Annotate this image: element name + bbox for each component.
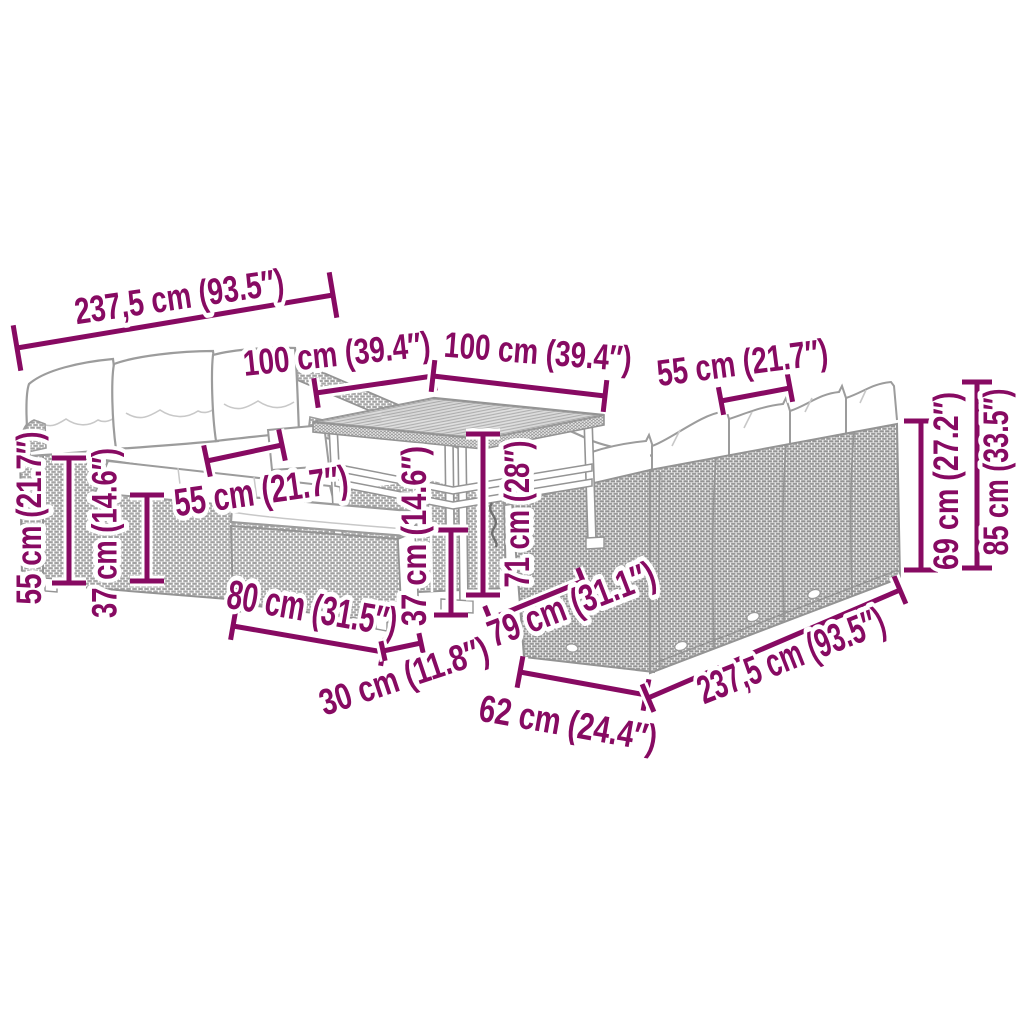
svg-text:69 cm (27.2″): 69 cm (27.2″) [927, 392, 966, 570]
svg-text:37 cm (14.6″): 37 cm (14.6″) [395, 446, 434, 626]
svg-text:55 cm (21.7″): 55 cm (21.7″) [10, 432, 49, 605]
svg-text:85 cm (33.5″): 85 cm (33.5″) [977, 389, 1016, 556]
svg-text:37 cm (14.6″): 37 cm (14.6″) [86, 448, 125, 618]
svg-text:71 cm (28″): 71 cm (28″) [498, 441, 537, 588]
